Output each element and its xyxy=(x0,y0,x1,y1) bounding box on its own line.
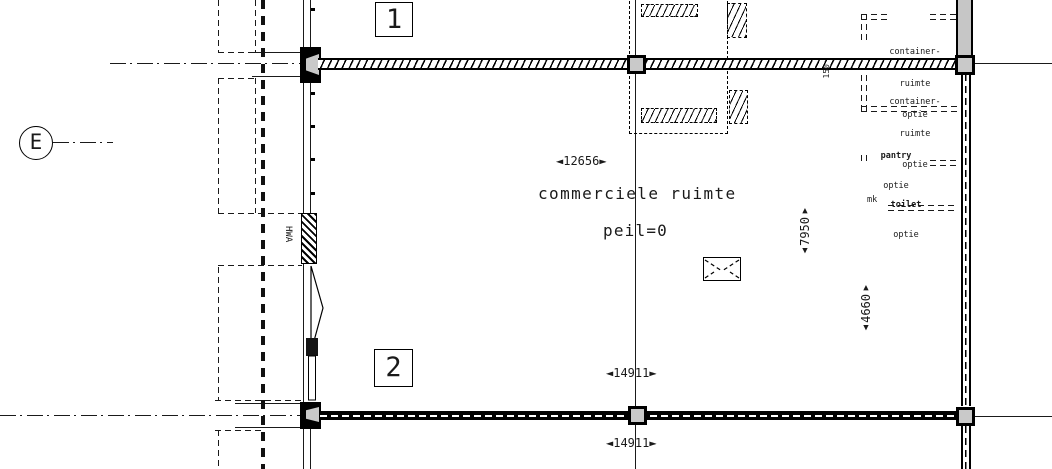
arrow-down-icon: ▼ xyxy=(802,247,807,256)
room-label: commerciele ruimte xyxy=(538,184,737,203)
hwa-label: HWA xyxy=(283,226,293,242)
grid-bubble-e-label: E xyxy=(30,130,43,154)
duct-option-box xyxy=(641,4,698,17)
reveal-line xyxy=(235,403,302,404)
partition-dash-vertical xyxy=(861,155,862,165)
floor-plan-canvas: HWA xyxy=(0,0,1052,469)
dashed-outline xyxy=(218,267,219,400)
grid-label-1-text: 1 xyxy=(386,4,402,35)
dashed-outline xyxy=(218,78,219,213)
partition-dash xyxy=(930,14,957,15)
dim-150: 150 xyxy=(822,64,831,78)
dim-14911-inner: ◄14911► xyxy=(606,366,657,380)
dashed-outline xyxy=(218,430,219,469)
partition-dash xyxy=(930,19,957,20)
wall-tick xyxy=(311,125,315,128)
gridline-right-top xyxy=(975,63,1052,64)
partition-dash-vertical xyxy=(866,75,867,113)
gridline-2-centerline xyxy=(0,415,302,416)
wall-node-bottom-left xyxy=(300,402,321,429)
gridline-right-bottom xyxy=(975,416,1052,417)
dashed-outline xyxy=(218,0,219,52)
dim-4660-value: 4660 xyxy=(859,294,873,323)
dashed-outline xyxy=(255,78,256,213)
column xyxy=(956,407,975,426)
heavy-dashed-line xyxy=(261,0,265,469)
arrow-up-icon: ▲ xyxy=(863,284,868,293)
pantry-line1: pantry xyxy=(868,151,924,162)
dashed-outline xyxy=(218,213,302,214)
node-grey-infill xyxy=(306,407,319,422)
dim-14911-outer: ◄14911► xyxy=(606,436,657,450)
partition-dash-vertical xyxy=(866,155,867,165)
dim-7950: ▲ 7950 ▼ xyxy=(792,207,818,256)
container-bottom-line1: container- xyxy=(872,97,958,108)
reveal-line xyxy=(252,76,302,77)
partition-dash-vertical xyxy=(861,14,862,40)
toilet-line1: toilet xyxy=(878,200,934,211)
dashed-outline xyxy=(218,52,256,53)
mk-label: mk xyxy=(867,195,877,206)
reveal-line xyxy=(252,52,302,53)
grid-label-2: 2 xyxy=(374,349,413,387)
gridline-1-centerline xyxy=(110,63,302,64)
dim-4660: ▲ 4660 ▼ xyxy=(853,284,879,333)
grid-label-2-text: 2 xyxy=(385,352,401,383)
toilet-line2: optie xyxy=(878,230,934,241)
reveal-line xyxy=(235,427,302,428)
wall-tick xyxy=(311,158,315,161)
dashed-outline xyxy=(218,78,256,79)
arrow-up-icon: ▲ xyxy=(802,207,807,216)
partition-dash-vertical xyxy=(866,14,867,40)
left-wall-line xyxy=(303,82,304,214)
gridline-e-centerline xyxy=(53,142,113,143)
level-label: peil=0 xyxy=(603,221,668,240)
column xyxy=(627,55,646,74)
floor-element-diagonals xyxy=(703,257,741,281)
dashed-outline xyxy=(218,265,302,266)
partition-dash-vertical xyxy=(861,75,862,113)
column xyxy=(628,406,647,425)
duct-option-box xyxy=(727,3,747,38)
left-wall-line xyxy=(310,428,311,469)
grid-bubble-e: E xyxy=(19,126,53,160)
right-wall xyxy=(961,74,971,406)
dashed-outline xyxy=(215,430,263,431)
duct-option-box xyxy=(641,108,717,123)
wall-tick xyxy=(311,192,315,195)
dashed-outline xyxy=(255,0,256,52)
right-wall xyxy=(961,426,971,469)
wall-tick xyxy=(311,92,315,95)
wall-tick xyxy=(311,8,315,11)
grid-label-1: 1 xyxy=(375,2,413,37)
dim-7950-value: 7950 xyxy=(798,217,812,246)
arrow-down-icon: ▼ xyxy=(863,324,868,333)
column xyxy=(955,55,975,75)
container-top-line1: container- xyxy=(872,47,958,58)
hwa-pier xyxy=(301,213,317,264)
toilet-label: toilet optie xyxy=(878,179,934,261)
dashed-outline xyxy=(215,400,303,401)
left-wall-line xyxy=(303,428,304,469)
left-wall-line xyxy=(303,0,304,48)
duct-option-box xyxy=(729,90,748,124)
dim-12656: ◄12656► xyxy=(556,154,607,168)
door-swing xyxy=(303,262,327,404)
right-wall-top xyxy=(956,0,973,55)
